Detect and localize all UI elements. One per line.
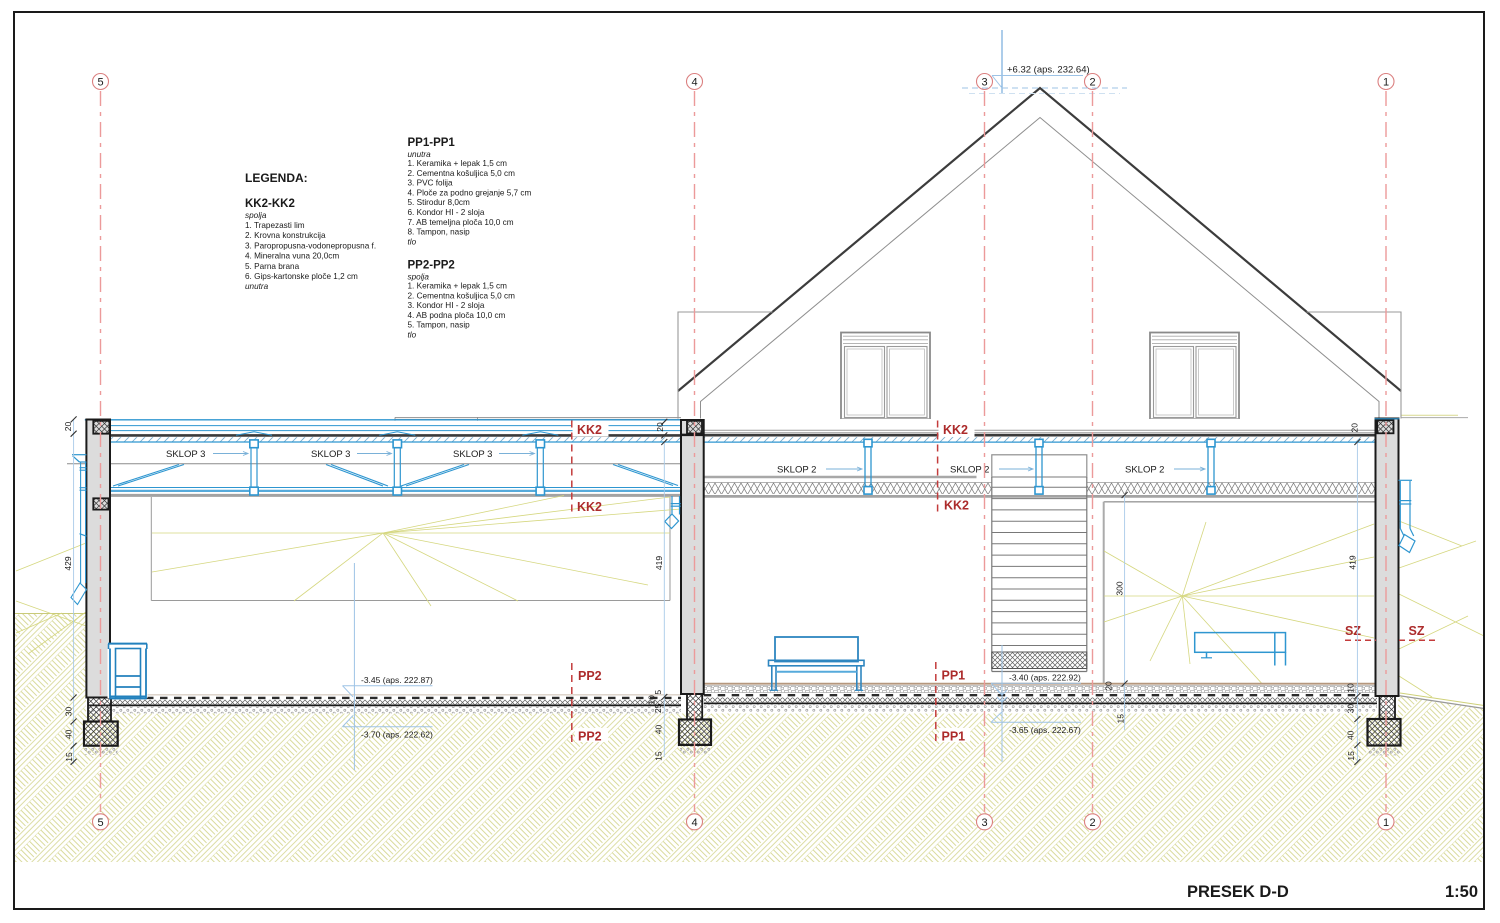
svg-text:LEGENDA:: LEGENDA: (245, 171, 308, 185)
svg-text:20: 20 (1104, 681, 1114, 691)
svg-text:2: 2 (1089, 77, 1095, 89)
svg-text:2. Cementna košuljica 5,0 cm: 2. Cementna košuljica 5,0 cm (408, 291, 516, 300)
svg-text:SZ: SZ (1409, 624, 1425, 638)
svg-text:6. Gips-kartonske ploče 1,2 cm: 6. Gips-kartonske ploče 1,2 cm (245, 272, 358, 281)
svg-text:2: 2 (1089, 817, 1095, 829)
svg-text:5. Parna brana: 5. Parna brana (245, 262, 300, 271)
svg-text:3. PVC folija: 3. PVC folija (408, 179, 453, 188)
svg-text:spolja: spolja (245, 211, 267, 220)
svg-text:5. Tampon, nasip: 5. Tampon, nasip (408, 321, 471, 330)
svg-text:4: 4 (691, 817, 697, 829)
svg-text:tlo: tlo (408, 237, 417, 246)
svg-text:2. Krovna konstrukcija: 2. Krovna konstrukcija (245, 231, 326, 240)
svg-text:15: 15 (654, 751, 664, 761)
svg-text:4. Ploče za podno grejanje 5,7: 4. Ploče za podno grejanje 5,7 cm (408, 188, 532, 197)
svg-text:8. Tampon, nasip: 8. Tampon, nasip (408, 228, 471, 237)
svg-text:1: 1 (1383, 77, 1389, 89)
svg-text:10: 10 (646, 695, 656, 705)
svg-text:40: 40 (654, 725, 664, 735)
svg-text:SZ: SZ (1345, 624, 1361, 638)
svg-text:+6.32 (aps. 232.64): +6.32 (aps. 232.64) (1007, 65, 1090, 76)
svg-text:7. AB temeljna ploča 10,0 cm: 7. AB temeljna ploča 10,0 cm (408, 218, 514, 227)
svg-text:KK2-KK2: KK2-KK2 (245, 198, 295, 210)
svg-text:SKLOP 3: SKLOP 3 (311, 449, 350, 460)
svg-text:unutra: unutra (245, 282, 269, 291)
svg-text:PP1: PP1 (942, 730, 966, 744)
svg-text:PP2: PP2 (578, 730, 602, 744)
svg-text:KK2: KK2 (577, 500, 602, 514)
svg-text:5: 5 (653, 690, 663, 695)
svg-text:5: 5 (97, 77, 103, 89)
svg-text:1. Trapezasti lim: 1. Trapezasti lim (245, 221, 305, 230)
svg-text:SKLOP 2: SKLOP 2 (1125, 465, 1164, 476)
svg-text:419: 419 (654, 556, 664, 570)
svg-text:SKLOP 2: SKLOP 2 (950, 465, 989, 476)
svg-text:30: 30 (63, 707, 73, 717)
svg-text:KK2: KK2 (943, 423, 968, 437)
svg-text:25: 25 (653, 703, 663, 713)
svg-text:300: 300 (1114, 581, 1124, 595)
svg-text:3. Paropropusna-vodonepropusna: 3. Paropropusna-vodonepropusna f. (245, 241, 376, 250)
svg-text:4: 4 (691, 77, 697, 89)
svg-text:40: 40 (1345, 730, 1355, 740)
svg-text:429: 429 (63, 556, 73, 570)
svg-text:-3.70 (aps. 222.62): -3.70 (aps. 222.62) (361, 730, 433, 740)
svg-text:4. Mineralna vuna 20,0cm: 4. Mineralna vuna 20,0cm (245, 252, 339, 261)
svg-text:20: 20 (63, 422, 73, 432)
svg-text:PRESEK D-D: PRESEK D-D (1187, 883, 1289, 901)
svg-text:SKLOP 2: SKLOP 2 (777, 465, 816, 476)
svg-text:20: 20 (1349, 423, 1359, 433)
svg-text:PP1-PP1: PP1-PP1 (408, 137, 456, 149)
svg-text:15: 15 (64, 752, 74, 762)
svg-text:3: 3 (981, 77, 987, 89)
svg-text:5: 5 (97, 817, 103, 829)
svg-text:1: 1 (1383, 817, 1389, 829)
svg-text:10: 10 (1346, 683, 1356, 693)
svg-text:20: 20 (655, 422, 665, 432)
svg-text:PP2-PP2: PP2-PP2 (408, 260, 455, 272)
svg-text:KK2: KK2 (944, 499, 969, 513)
svg-text:5. Stirodur 8,0cm: 5. Stirodur 8,0cm (408, 198, 471, 207)
svg-text:PP1: PP1 (942, 669, 966, 683)
svg-text:-3.45 (aps. 222.87): -3.45 (aps. 222.87) (361, 675, 433, 685)
svg-text:SKLOP 3: SKLOP 3 (453, 449, 492, 460)
svg-text:1. Keramika + lepak 1,5 cm: 1. Keramika + lepak 1,5 cm (408, 159, 508, 168)
svg-text:spolja: spolja (408, 273, 430, 282)
svg-text:SKLOP 3: SKLOP 3 (166, 449, 205, 460)
svg-text:PP2: PP2 (578, 669, 602, 683)
svg-text:4. AB podna ploča 10,0 cm: 4. AB podna ploča 10,0 cm (408, 311, 506, 320)
svg-text:-3.40 (aps. 222.92): -3.40 (aps. 222.92) (1009, 673, 1081, 683)
svg-text:unutra: unutra (408, 150, 432, 159)
svg-text:6. Kondor HI - 2 sloja: 6. Kondor HI - 2 sloja (408, 208, 485, 217)
svg-text:3. Kondor HI - 2 sloja: 3. Kondor HI - 2 sloja (408, 301, 485, 310)
svg-text:3: 3 (981, 817, 987, 829)
svg-text:2. Cementna košuljica 5,0 cm: 2. Cementna košuljica 5,0 cm (408, 169, 516, 178)
svg-text:KK2: KK2 (577, 423, 602, 437)
svg-text:1. Keramika + lepak 1,5 cm: 1. Keramika + lepak 1,5 cm (408, 282, 508, 291)
svg-text:419: 419 (1348, 555, 1358, 569)
svg-text:tlo: tlo (408, 331, 417, 340)
svg-text:30: 30 (1345, 704, 1355, 714)
svg-text:1:50: 1:50 (1445, 883, 1478, 901)
svg-text:-3.65 (aps. 222.67): -3.65 (aps. 222.67) (1009, 725, 1081, 735)
svg-text:40: 40 (63, 729, 73, 739)
svg-text:15: 15 (1115, 714, 1125, 724)
svg-text:15: 15 (1346, 751, 1356, 761)
